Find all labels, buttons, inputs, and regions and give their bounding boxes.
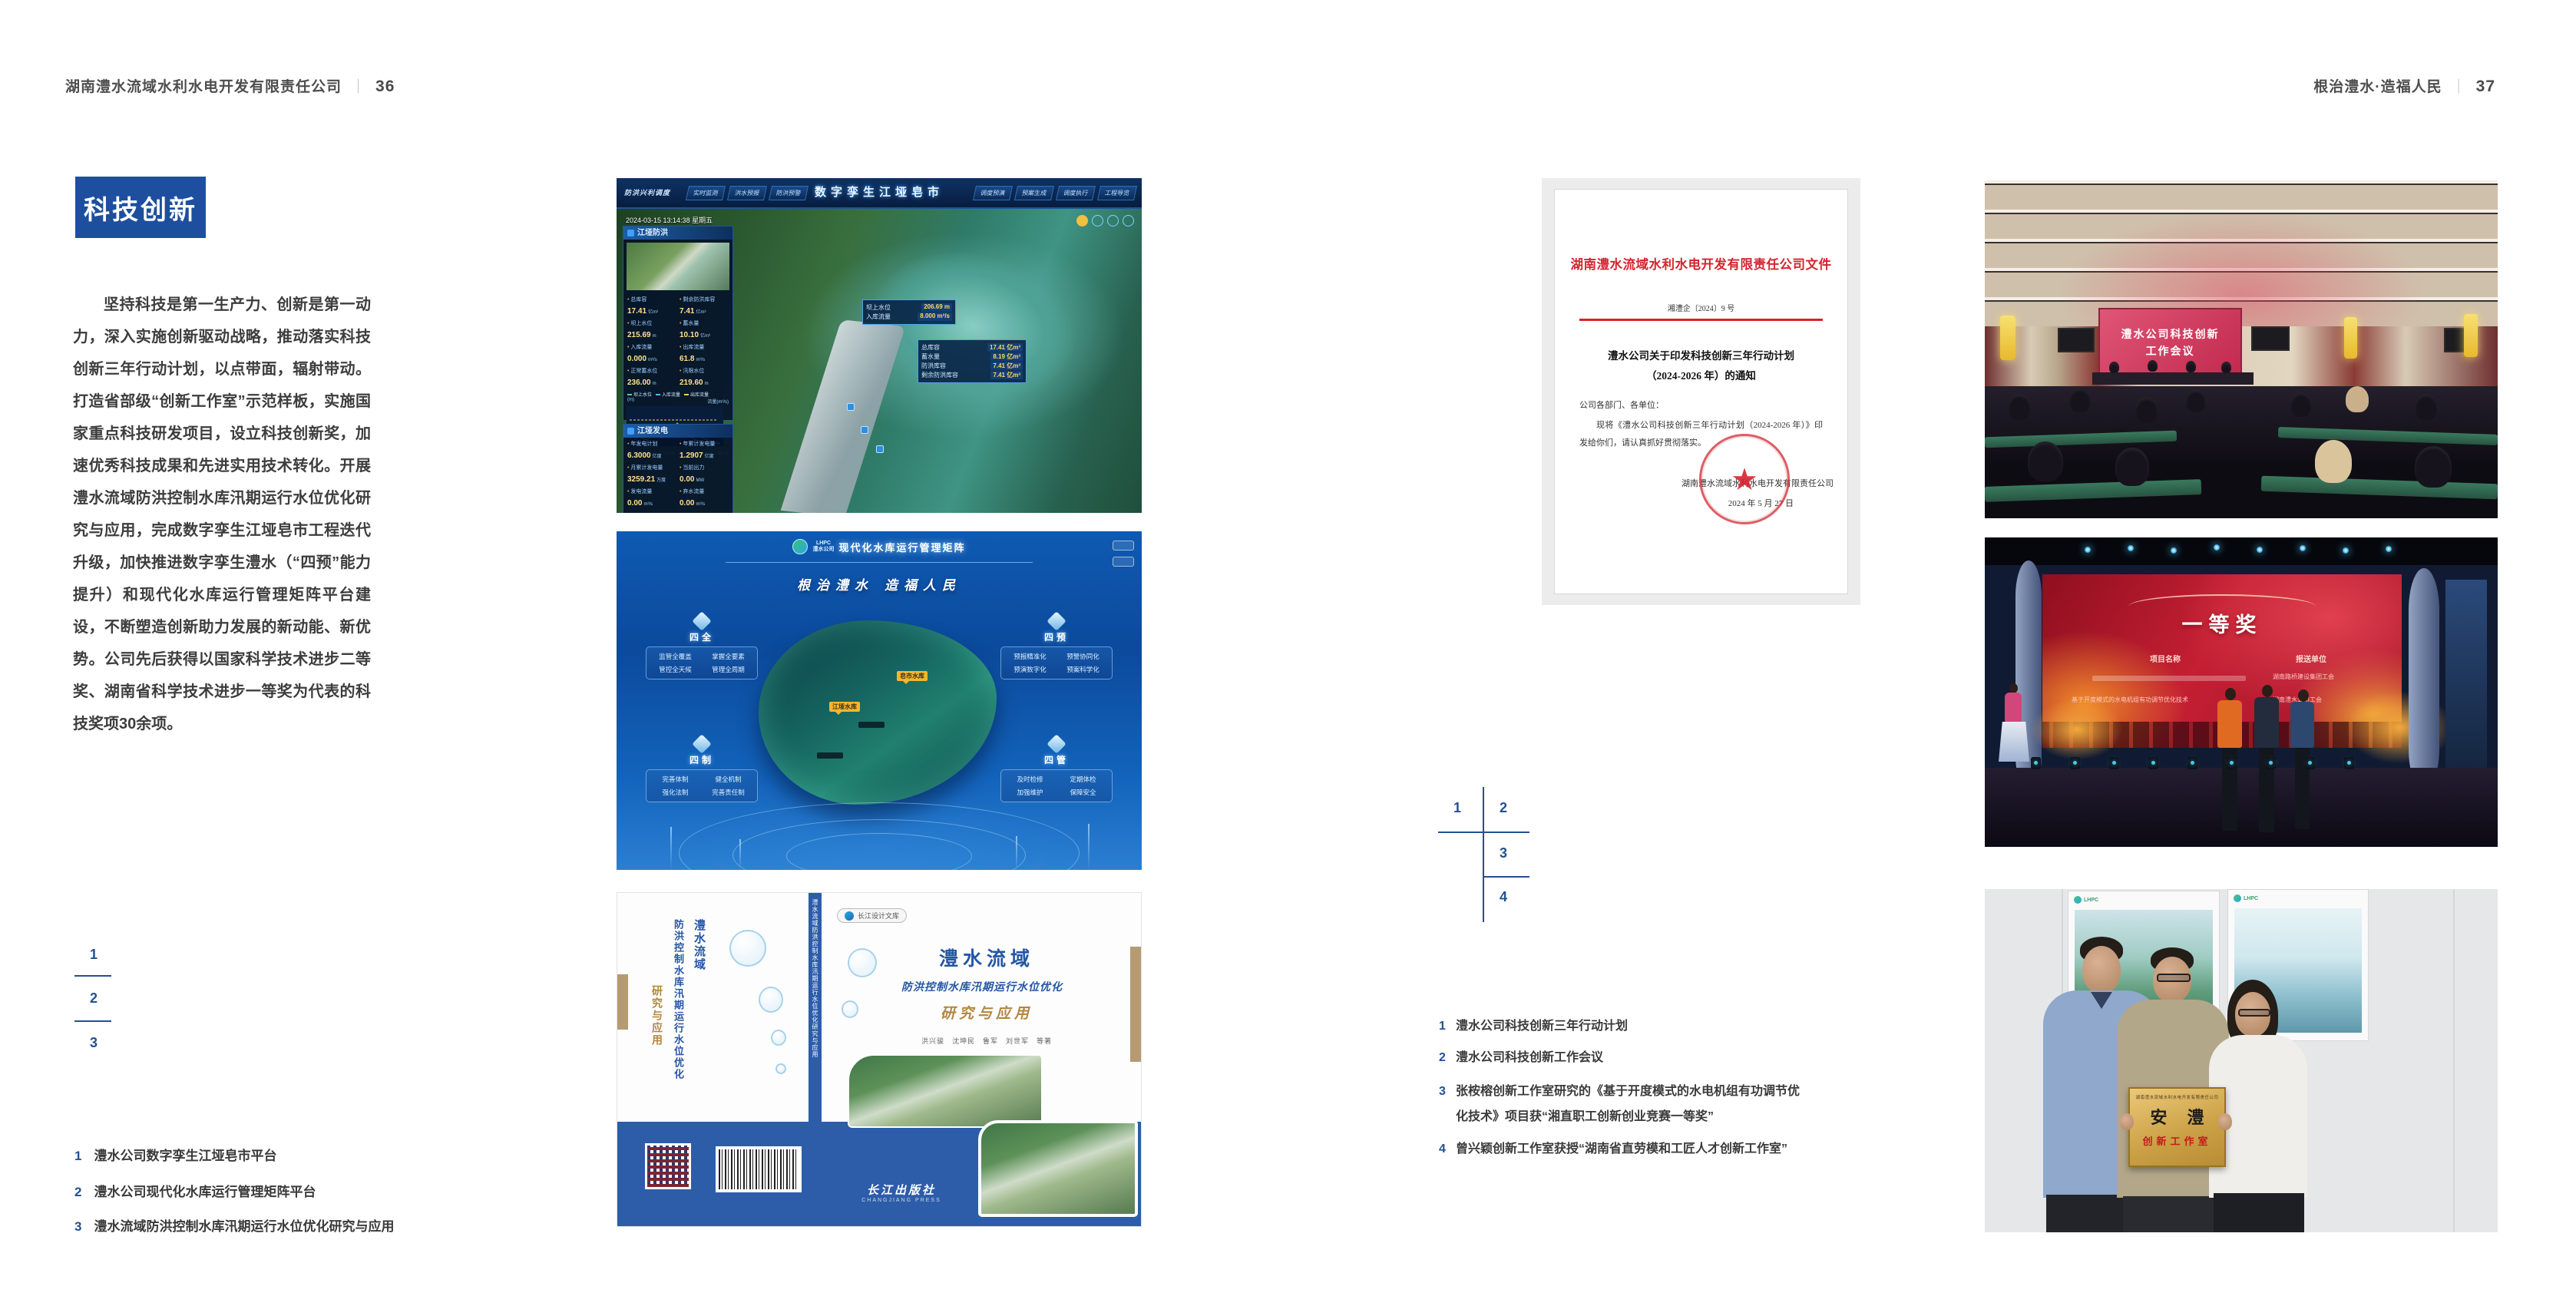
panel-item: 加强维护	[1004, 788, 1056, 797]
stat-label: 入库流量	[627, 343, 676, 351]
matrix-slogan: 根治澧水 造福人民	[617, 574, 1142, 593]
panel-item: 完善责任制	[703, 788, 754, 797]
authors-line: 洪兴骏 沈坤民 鲁军 刘世军 等著	[848, 1036, 1126, 1046]
wall-tv	[2058, 328, 2095, 352]
attendee-silhouette	[2115, 448, 2149, 486]
stat-value: 1.2907	[680, 451, 703, 460]
press-logo-icon	[845, 911, 854, 921]
dashboard-right-tabs: 调度预演 预案生成 调度执行 工程导览	[974, 186, 1136, 200]
stat-unit: 万度	[656, 478, 666, 483]
title-line-2: （2024-2026 年）的通知	[1555, 366, 1847, 386]
light-fixture	[2305, 757, 2315, 769]
light-fixture	[2070, 757, 2080, 769]
podium	[1999, 722, 2029, 762]
book-spine: 澧水流域防洪控制水库汛期运行水位优化研究与应用	[809, 893, 822, 1227]
stat-value: 0.000	[627, 355, 646, 363]
panel-item: 健全机制	[703, 775, 754, 784]
stat-unit: 亿m³	[696, 310, 706, 315]
stat-value: 7.41	[680, 307, 694, 316]
light-fixture	[2187, 757, 2197, 769]
panel-item: 预警协同化	[1057, 652, 1109, 661]
panel-item: 定期体检	[1057, 775, 1109, 784]
attendee-silhouette	[2415, 394, 2438, 420]
marker-station	[817, 752, 843, 759]
attendee-silhouette	[2186, 389, 2206, 412]
tip-value: 17.41 亿m³	[987, 343, 1023, 352]
flood-stats: 总库容17.41亿m³ 剩余防洪库容7.41亿m³ 坝上水位215.69m 蓄水…	[623, 293, 732, 391]
water-drop-graphic	[729, 930, 766, 967]
dam-structure	[781, 319, 906, 513]
figure-index-3: 3	[83, 1035, 104, 1051]
glasses-icon	[2238, 1009, 2270, 1017]
water-drop-graphic	[775, 1063, 786, 1074]
lhpc-logo-icon: LHPC	[2074, 896, 2098, 904]
stat-label: 正常蓄水位	[627, 367, 676, 375]
tip-label: 坝上水位	[866, 303, 891, 312]
back-title-sub: 防洪控制水库汛期运行水位优化	[671, 919, 686, 1096]
poster-logo-text: LHPC	[2244, 896, 2258, 901]
stage-floor	[1985, 768, 2498, 847]
stat-label: 月累计发电量	[627, 464, 676, 471]
header-underline	[726, 557, 1033, 563]
caption-text: 澧水公司科技创新三年行动计划	[1456, 1020, 1628, 1033]
series-name: 长江设计文库	[858, 911, 899, 921]
dam-powerhouse-photo	[978, 1120, 1138, 1217]
green-desk	[2278, 427, 2498, 445]
stat-value: 0.00	[627, 499, 642, 508]
light-pillar	[670, 827, 672, 870]
tip-label: 入库流量	[866, 312, 891, 321]
caption-text: 澧水流域防洪控制水库汛期运行水位优化研究与应用	[94, 1219, 394, 1234]
back-title-main: 澧水流域	[691, 919, 707, 971]
stat-label: 弃水流量	[680, 488, 729, 495]
seal-star-icon: ★	[1731, 461, 1758, 498]
panelist-silhouette	[2148, 360, 2158, 372]
monitor-icon	[692, 611, 711, 630]
caption-text: 张桉榕创新工作室研究的《基于开度模式的水电机组有功调节优化技术》项目获“湘直职工…	[1456, 1085, 1800, 1123]
caption-1: 1澧水公司数字孪生江垭皂市平台	[74, 1145, 276, 1164]
caption-3: 3澧水流域防洪控制水库汛期运行水位优化研究与应用	[74, 1215, 394, 1235]
title-line-1: 澧水公司关于印发科技创新三年行动计划	[1555, 346, 1847, 366]
stat-label: 汛限水位	[680, 367, 729, 375]
barcode	[716, 1146, 802, 1192]
stage-light	[2128, 545, 2134, 551]
water-drop-graphic	[759, 987, 783, 1013]
panel-title: 江垭发电	[623, 425, 732, 438]
stat-unit: m³/s	[648, 358, 657, 362]
marker-station	[858, 722, 885, 728]
power-stats: 年发电计划6.3000亿度 年累计发电量1.2907亿度 月累计发电量3259.…	[623, 438, 732, 511]
light-fixture	[2031, 757, 2041, 769]
figure-official-document: 湖南澧水流域水利水电开发有限责任公司文件 湘澧企〔2024〕9 号 澧水公司关于…	[1542, 178, 1860, 605]
light-pillar	[739, 839, 741, 870]
brand-abbr: LHPC	[816, 541, 831, 546]
panel-name: 四管	[1000, 753, 1113, 766]
orange-glow	[2031, 699, 2123, 760]
lhpc-logo-icon	[792, 539, 808, 554]
figure-index-4: 4	[1493, 889, 1514, 905]
person-trousers	[2214, 1193, 2304, 1232]
locate-icon	[1107, 215, 1119, 226]
panel-item: 预演数字化	[1004, 665, 1056, 674]
hand	[2120, 1113, 2134, 1130]
publisher-block: 长江出版社 CHANGJIANG PRESS	[840, 1182, 963, 1203]
stat-unit: m	[653, 334, 656, 339]
document-letterhead: 湖南澧水流域水利水电开发有限责任公司文件	[1555, 254, 1847, 273]
magazine-spread: 湖南澧水流域水利水电开发有限责任公司｜36 科技创新 坚持科技是第一生产力、创新…	[0, 0, 2576, 1306]
document-number: 湘澧企〔2024〕9 号	[1555, 302, 1847, 313]
right-page-number: 37	[2476, 78, 2495, 95]
wall-tv	[2251, 326, 2290, 351]
water-drop-graphic	[771, 1030, 786, 1046]
stat-unit: m³/s	[696, 358, 705, 362]
matrix-title: 现代化水库运行管理矩阵	[838, 540, 965, 554]
forecast-icon	[1047, 611, 1066, 630]
publisher-name-en: CHANGJIANG PRESS	[840, 1198, 963, 1203]
lhpc-logo-icon: LHPC	[2234, 894, 2258, 902]
map-pin-icon	[861, 426, 868, 434]
map-pin-icon	[847, 403, 855, 411]
back-cover-tan-tab	[617, 974, 628, 1030]
panel-item: 强化法制	[650, 788, 701, 797]
tip-label: 防洪库容	[921, 362, 946, 370]
tip-value: 7.41 亿m³	[990, 362, 1023, 370]
panelist-silhouette	[2109, 362, 2119, 373]
map-pin-icon	[876, 445, 884, 453]
index-divider	[1483, 876, 1529, 878]
panel-siguan: 四管 及时检修定期体检加强维护保障安全	[1000, 737, 1113, 802]
tip-label: 剩余防洪库容	[921, 371, 958, 379]
caption-number: 3	[74, 1219, 81, 1234]
stat-label: 蓄水量	[680, 319, 729, 327]
wall-seam	[2453, 889, 2455, 1232]
light-fixture	[2227, 757, 2237, 769]
attendee-silhouette	[2069, 388, 2091, 412]
panel-siquan: 四全 监管全覆盖掌握全要素管控全天候管理全周期	[646, 614, 758, 679]
green-desk	[1985, 479, 2201, 502]
light-pillar	[1016, 836, 1017, 870]
tab-plan-generation: 预案生成	[1014, 186, 1054, 200]
marker-jiangya-reservoir: 江垭水库	[829, 702, 860, 712]
attendee-silhouette	[2315, 440, 2352, 483]
screen-line-1: 澧水公司科技创新	[2121, 326, 2220, 342]
host-body	[2005, 693, 2022, 725]
figure-matrix-platform: LHPC澧水公司 现代化水库运行管理矩阵 根治澧水 造福人民 四全 监管全覆盖掌…	[617, 531, 1142, 870]
head-table	[2092, 372, 2254, 385]
plaque-subtitle: 创新工作室	[2130, 1133, 2224, 1148]
panel-name: 四预	[1000, 630, 1113, 643]
red-seal: ★	[1699, 434, 1790, 524]
figure-index-1: 1	[1447, 800, 1468, 816]
caption-4: 4曾兴颖创新工作室获授“湖南省直劳模和工匠人才创新工作室”	[1456, 1136, 1803, 1162]
conference-ceiling	[1985, 180, 2498, 326]
left-page-number: 36	[375, 78, 395, 95]
front-title-tail: 研究与应用	[848, 1002, 1126, 1023]
panel-name: 四制	[646, 753, 758, 766]
stat-label: 发电流量	[627, 488, 676, 495]
stat-unit: 亿度	[705, 455, 714, 459]
caption-1: 1澧水公司科技创新三年行动计划	[1456, 1013, 1803, 1039]
stat-value: 17.41	[627, 307, 646, 316]
stat-value: 10.10	[680, 331, 699, 339]
stage-light	[2085, 547, 2091, 553]
tip-value: 8.19 亿m³	[990, 352, 1023, 361]
glasses-icon	[2157, 974, 2191, 982]
axis-right-label: 流量(m³/s)	[707, 398, 729, 405]
panel-item: 管控全天候	[650, 665, 701, 674]
chart-legend: 坝上水位 入库流量 出库流量	[623, 391, 732, 398]
legend-inflow: 入库流量	[662, 393, 680, 398]
stat-unit: m³/s	[643, 502, 653, 507]
marker-zaoshi-reservoir: 皂市水库	[897, 671, 928, 681]
spine-title: 澧水流域防洪控制水库汛期运行水位优化研究与应用	[811, 899, 819, 1058]
caption-text: 曾兴颖创新工作室获授“湖南省直劳模和工匠人才创新工作室”	[1456, 1142, 1787, 1156]
caption-2: 2澧水公司科技创新工作会议	[1456, 1045, 1803, 1070]
index-divider	[74, 1020, 111, 1022]
screen-line-2: 工作会议	[2146, 342, 2195, 359]
column-header-unit: 报送单位	[2296, 653, 2326, 664]
dashboard-toolbar-icons	[1076, 215, 1134, 226]
document-body: 现将《澧水公司科技创新三年行动计划（2024-2026 年）》印发给你们，请认真…	[1579, 417, 1823, 452]
left-header-title: 湖南澧水流域水利水电开发有限责任公司	[65, 79, 342, 95]
wall-lamp	[2344, 317, 2357, 359]
wall-lamp	[2000, 316, 2015, 360]
panel-item: 保障安全	[1057, 788, 1109, 797]
attendee-silhouette	[2415, 446, 2452, 488]
stat-unit: 亿m³	[648, 310, 658, 315]
menu-button	[1113, 557, 1134, 567]
stat-label: 年发电计划	[627, 440, 676, 448]
salutation: 公司各部门、各单位：	[1579, 398, 1664, 411]
figure-index-1: 1	[83, 947, 104, 963]
stat-unit: MW	[696, 478, 704, 483]
panel-item: 及时检修	[1004, 775, 1056, 784]
stage-light	[2214, 544, 2220, 551]
stage-light	[2171, 547, 2177, 554]
alert-icon	[1092, 215, 1103, 226]
stat-label: 当前出力	[680, 464, 729, 471]
figure-index-2: 2	[1493, 800, 1514, 816]
document-title: 澧水公司关于印发科技创新三年行动计划 （2024-2026 年）的通知	[1555, 346, 1847, 386]
column-header-project: 项目名称	[2150, 653, 2181, 664]
stat-unit: m	[653, 382, 656, 386]
green-desk	[1985, 431, 2177, 448]
stat-value: 3259.21	[627, 475, 655, 484]
institution-icon	[692, 734, 711, 753]
maintenance-icon	[1047, 734, 1066, 753]
moving-head-lights-row	[2031, 757, 2354, 769]
unit-row-1: 湖南路桥建设集团工会	[2273, 673, 2334, 681]
stage-light	[2386, 546, 2392, 552]
host-silhouette	[1999, 683, 2045, 768]
back-title-tail: 研究与应用	[650, 985, 665, 1046]
tab-dispatch-rehearsal: 调度预演	[973, 186, 1013, 200]
index-divider	[1438, 832, 1529, 833]
poster-logo-text: LHPC	[2084, 898, 2098, 903]
tab-dispatch-execute: 调度执行	[1056, 186, 1096, 200]
tip-value: 8.000 m³/s	[918, 312, 952, 321]
stat-unit: m³/s	[696, 502, 705, 507]
panel-item: 完善体制	[650, 775, 701, 784]
chart-axis-labels: (m)流量(m³/s)	[623, 398, 732, 405]
plaque-title: 安澧	[2130, 1104, 2224, 1129]
scene-tooltip-capacity: 总库容17.41 亿m³ 蓄水量8.19 亿m³ 防洪库容7.41 亿m³ 剩余…	[918, 339, 1027, 383]
light-fixture	[2266, 757, 2276, 769]
caption-2: 2澧水公司现代化水库运行管理矩阵平台	[74, 1181, 316, 1200]
figure-book-cover: 澧水流域 防洪控制水库汛期运行水位优化 研究与应用 澧水流域防洪控制水库汛期运行…	[617, 892, 1142, 1227]
light-fixture	[2344, 757, 2354, 769]
panel-item: 预报精准化	[1004, 652, 1056, 661]
stat-label: 年累计发电量	[680, 440, 729, 448]
stat-value: 0.00	[680, 475, 694, 484]
stat-unit: 亿m³	[700, 334, 710, 339]
tip-value: 7.41 亿m³	[990, 371, 1023, 379]
tip-value: 206.69 m	[921, 303, 952, 312]
conference-screen: 澧水公司科技创新 工作会议	[2100, 309, 2240, 375]
stat-value: 61.8	[680, 355, 694, 363]
attendee-silhouette	[2028, 441, 2063, 481]
user-icon	[1076, 215, 1088, 226]
stat-unit: m	[705, 382, 709, 386]
attendee-silhouette	[2346, 386, 2369, 412]
header-separator: ｜	[2452, 79, 2467, 95]
front-title-main: 澧水流域	[848, 944, 1126, 971]
figure-digital-twin-dashboard: 防洪兴利调度 实时监测 洪水预报 防洪预警 数字孪生江垭皂市 调度预演 预案生成…	[617, 178, 1142, 513]
header-separator: ｜	[351, 79, 366, 95]
caption-number: 2	[74, 1185, 81, 1199]
audience-area	[1985, 386, 2498, 518]
panelist-silhouette	[2186, 361, 2196, 372]
hand	[2218, 1113, 2232, 1130]
figure-index-3: 3	[1493, 845, 1514, 861]
panel-sizhi: 四制 完善体制健全机制强化法制完善责任制	[646, 737, 758, 802]
axis-left-label: (m)	[627, 398, 634, 405]
dashboard-timestamp: 2024-03-15 13:14:38 星期五	[626, 215, 713, 225]
stat-value: 215.69	[627, 331, 651, 339]
stage-truss	[1985, 537, 2498, 565]
stat-label: 坝上水位	[627, 319, 676, 327]
gauge-row: 0.00 700.98 0.00	[623, 511, 732, 513]
panel-item: 掌握全要素	[703, 652, 754, 661]
award-title: 一等奖	[2042, 608, 2402, 638]
person-head	[2082, 946, 2121, 994]
matrix-corner-buttons	[1113, 541, 1134, 567]
attendee-silhouette	[2008, 394, 2031, 420]
plaque-header: 湖南澧水流域水利水电开发有限责任公司	[2130, 1094, 2224, 1100]
side-screen	[2445, 580, 2487, 772]
caption-3: 3张桉榕创新工作室研究的《基于开度模式的水电机组有功调节优化技术》项目获“湘直职…	[1456, 1079, 1803, 1129]
right-header-title: 根治澧水·造福人民	[2313, 79, 2442, 95]
publisher-name: 长江出版社	[840, 1182, 963, 1198]
figure-award-stage-photo: 一等奖 项目名称 报送单位 湖南路桥建设集团工会 基于开度模式的水电机组有功调节…	[1985, 537, 2498, 847]
watershed-3d-map: 皂市水库 江垭水库	[759, 620, 997, 805]
stat-value: 0.00	[680, 499, 694, 508]
figure-studio-group-photo: LHPC LHPC 湖南澧水流域水	[1985, 889, 2498, 1232]
legend-outflow: 出库流量	[690, 393, 709, 398]
caption-number: 4	[1439, 1136, 1446, 1162]
dam-canyon-photo	[848, 1054, 1043, 1128]
index-vertical-line	[1483, 787, 1484, 922]
series-badge: 长江设计文库	[837, 908, 907, 923]
front-cover-tan-tab	[1130, 947, 1141, 1062]
stage-light	[2300, 545, 2306, 551]
layers-icon	[1123, 215, 1134, 226]
close-button	[1113, 541, 1134, 551]
caption-number: 2	[1439, 1045, 1446, 1070]
innovation-studio-plaque: 湖南澧水流域水利水电开发有限责任公司 安澧 创新工作室	[2128, 1087, 2226, 1167]
caption-number: 3	[1439, 1079, 1446, 1104]
stage-light	[2343, 547, 2349, 554]
stat-value: 219.60	[680, 379, 703, 387]
stat-value: 6.3000	[627, 451, 651, 460]
body-paragraph: 坚持科技是第一生产力、创新是第一动力，深入实施创新驱动战略，推动落实科技创新三年…	[73, 289, 371, 740]
light-fixture	[2109, 757, 2119, 769]
tab-project-tour: 工程导览	[1097, 186, 1137, 200]
figure-index-2: 2	[83, 990, 104, 1007]
scene-tooltip-water: 坝上水位206.69 m 入库流量8.000 m³/s	[862, 299, 956, 325]
caption-text: 澧水公司科技创新工作会议	[1456, 1051, 1603, 1064]
caption-text: 澧水公司现代化水库运行管理矩阵平台	[94, 1185, 316, 1199]
panel-item: 监管全覆盖	[650, 652, 701, 661]
attendee-silhouette	[2135, 397, 2158, 423]
stat-unit: 亿度	[653, 455, 662, 459]
caption-number: 1	[74, 1149, 81, 1163]
tip-label: 蓄水量	[921, 352, 940, 361]
wall-lamp	[2464, 314, 2478, 357]
stage-right-pillar	[2409, 568, 2439, 791]
dam-thumbnail-photo	[627, 243, 729, 290]
flood-control-panel: 江垭防洪 总库容17.41亿m³ 剩余防洪库容7.41亿m³ 坝上水位215.6…	[623, 226, 733, 421]
figure-conference-photo: 澧水公司科技创新 工作会议	[1985, 180, 2498, 518]
power-generation-panel: 江垭发电 年发电计划6.3000亿度 年累计发电量1.2907亿度 月累计发电量…	[623, 424, 733, 513]
right-page-header: 根治澧水·造福人民｜37	[2313, 75, 2495, 96]
tip-label: 总库容	[921, 343, 940, 352]
project-row-1-blurred	[2092, 676, 2246, 681]
caption-text: 澧水公司数字孪生江垭皂市平台	[94, 1149, 276, 1163]
section-badge: 科技创新	[75, 177, 206, 238]
stat-label: 出库流量	[680, 343, 729, 351]
index-divider	[74, 975, 111, 977]
panel-item: 预案科学化	[1057, 665, 1109, 674]
stat-label: 总库容	[627, 296, 676, 303]
stage-light	[2257, 547, 2263, 553]
person-trousers	[2123, 1196, 2224, 1232]
qr-code	[645, 1143, 691, 1189]
light-pillar	[1088, 824, 1090, 870]
caption-number: 1	[1439, 1013, 1446, 1039]
red-rule	[1579, 319, 1823, 321]
panel-title: 江垭防洪	[623, 226, 732, 240]
green-desk	[2261, 476, 2498, 500]
stat-label: 剩余防洪库容	[680, 296, 729, 303]
legend-water-level: 坝上水位	[633, 393, 652, 398]
stat-value: 236.00	[627, 379, 651, 387]
front-title-sub: 防洪控制水库汛期运行水位优化	[832, 979, 1132, 994]
panelist-silhouette	[2221, 362, 2231, 373]
panel-name: 四全	[646, 630, 758, 643]
matrix-header: LHPC澧水公司 现代化水库运行管理矩阵	[617, 539, 1142, 554]
attendee-silhouette	[2290, 392, 2312, 417]
brand-name: 澧水公司	[812, 547, 834, 552]
light-fixture	[2148, 757, 2158, 769]
panel-siyu: 四预 预报精准化预警协同化预演数字化预案科学化	[1000, 614, 1113, 679]
panel-item: 管理全周期	[703, 665, 754, 674]
left-page-header: 湖南澧水流域水利水电开发有限责任公司｜36	[65, 75, 395, 96]
document-page: 湖南澧水流域水利水电开发有限责任公司文件 湘澧企〔2024〕9 号 澧水公司关于…	[1554, 189, 1848, 594]
